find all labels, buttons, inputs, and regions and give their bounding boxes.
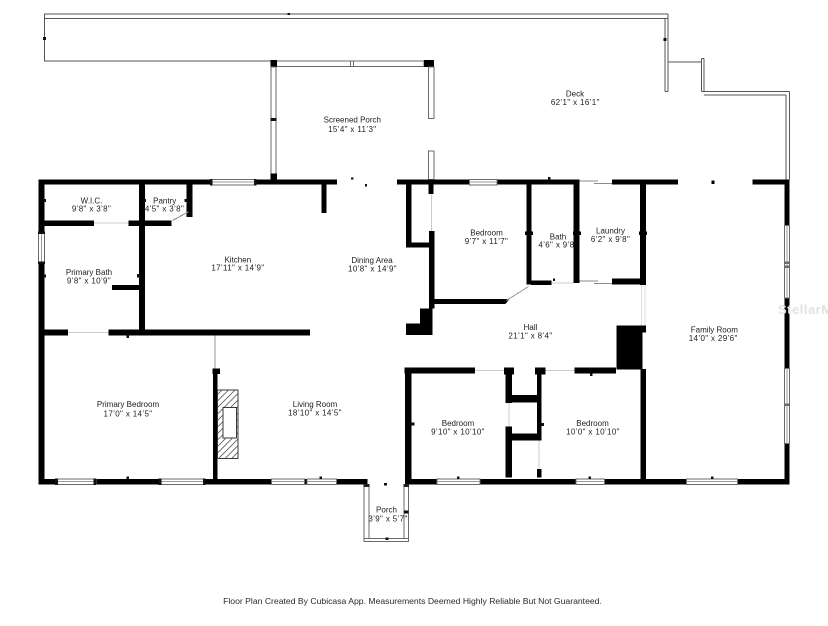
svg-text:17’11" x 14’9": 17’11" x 14’9": [211, 264, 264, 273]
svg-text:17’0" x 14’5": 17’0" x 14’5": [104, 409, 153, 418]
svg-text:6’2" x 9’8": 6’2" x 9’8": [591, 235, 630, 244]
svg-text:StellarMLS: StellarMLS: [778, 302, 828, 317]
svg-text:Porch: Porch: [376, 505, 397, 514]
svg-text:9’10" x 10’10": 9’10" x 10’10": [431, 427, 485, 436]
svg-text:21’1" x 8’4": 21’1" x 8’4": [508, 331, 552, 340]
svg-text:62’1" x 16’1": 62’1" x 16’1": [551, 98, 600, 107]
svg-text:9’8" x 10’9": 9’8" x 10’9": [67, 277, 111, 286]
svg-text:4’5" x 3’8": 4’5" x 3’8": [145, 205, 184, 214]
svg-text:15’4" x 11’3": 15’4" x 11’3": [328, 125, 376, 134]
svg-text:Floor Plan Created By Cubicasa: Floor Plan Created By Cubicasa App. Meas…: [223, 596, 602, 606]
svg-text:Family Room: Family Room: [691, 325, 738, 334]
svg-text:10’0" x 10’10": 10’0" x 10’10": [566, 427, 620, 436]
svg-text:10’8" x 14’9": 10’8" x 14’9": [348, 265, 397, 274]
svg-text:9’8" x 3’8": 9’8" x 3’8": [72, 205, 111, 214]
svg-text:4’6" x 9’8": 4’6" x 9’8": [538, 240, 577, 249]
svg-text:Primary Bedroom: Primary Bedroom: [97, 400, 160, 409]
svg-text:Screened Porch: Screened Porch: [324, 116, 381, 125]
svg-text:9’7" x 11’7": 9’7" x 11’7": [465, 237, 509, 246]
svg-text:3’9" x 5’7": 3’9" x 5’7": [368, 514, 407, 523]
svg-text:14’0" x 29’6": 14’0" x 29’6": [689, 334, 738, 343]
svg-text:18’10" x 14’5": 18’10" x 14’5": [288, 409, 342, 418]
